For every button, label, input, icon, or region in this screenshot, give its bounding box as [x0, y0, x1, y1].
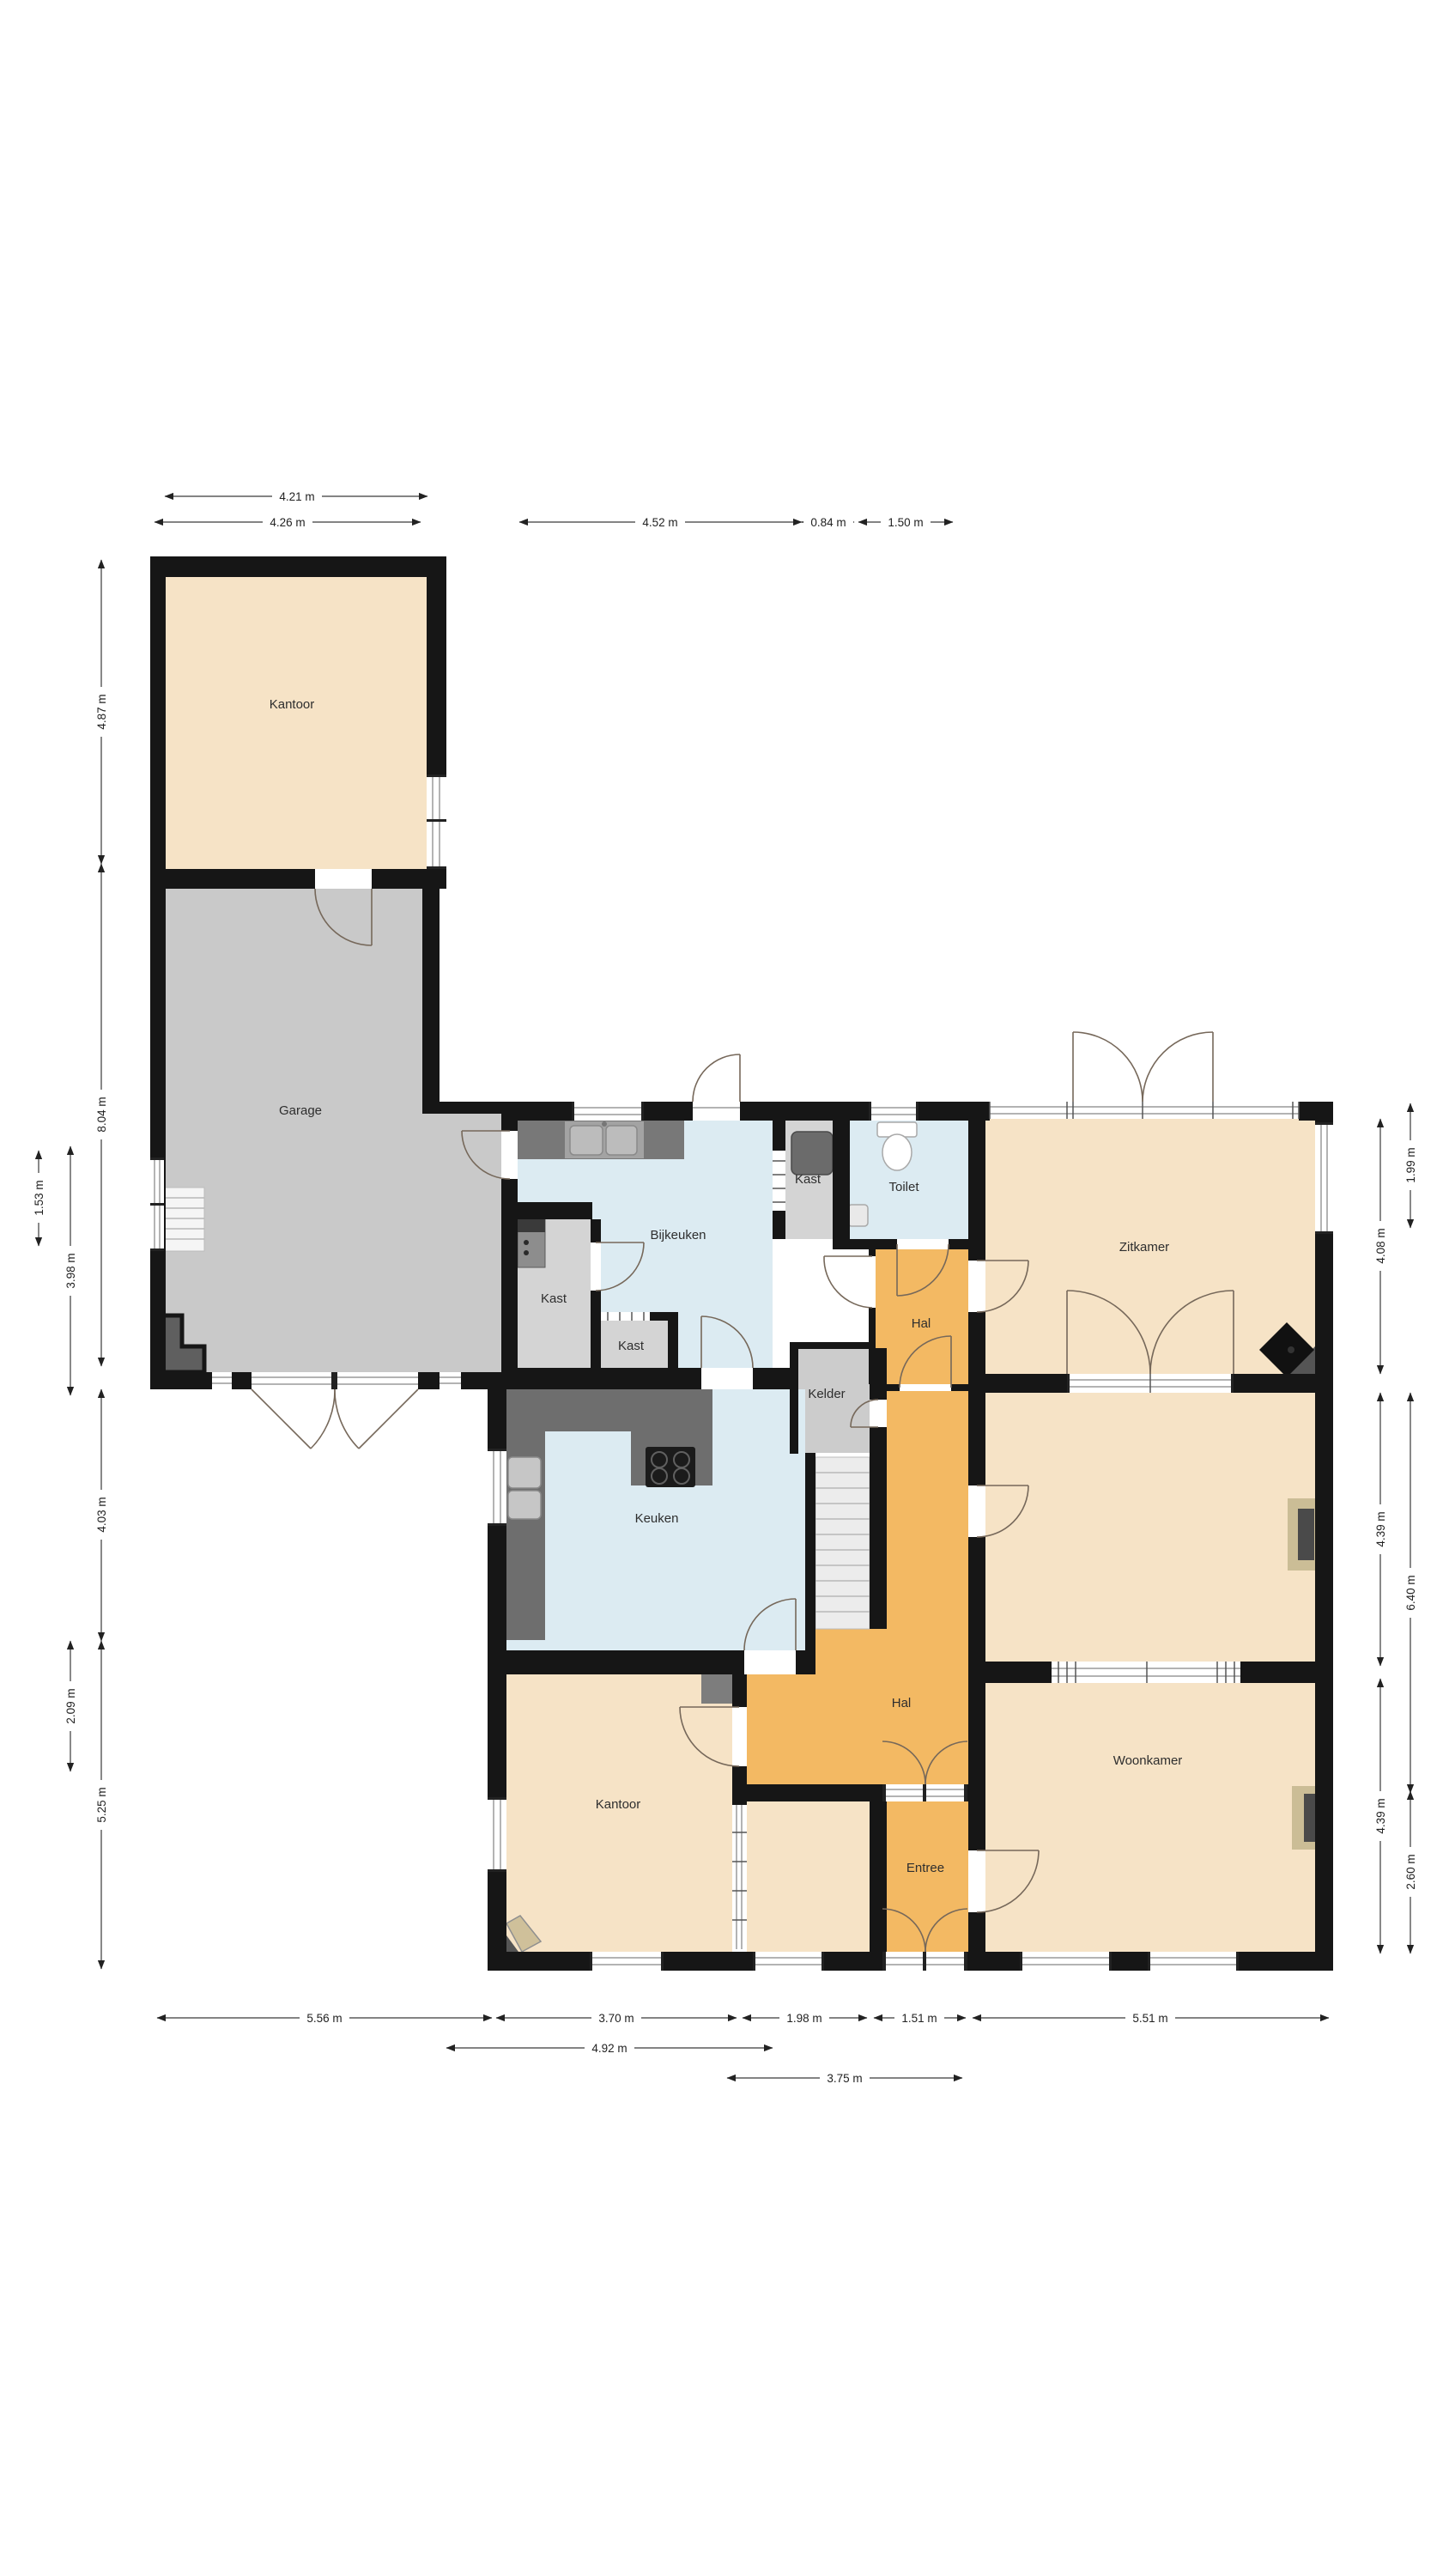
svg-text:6.40 m: 6.40 m	[1404, 1575, 1417, 1610]
dim-left-403: 4.03 m	[94, 1389, 109, 1641]
dim-bottom-556: 5.56 m	[157, 2010, 492, 2025]
label-hal-main: Hal	[892, 1696, 912, 1710]
label-kast-right: Kast	[795, 1172, 822, 1187]
opening-ensuite	[1052, 1662, 1240, 1683]
label-kantoor-top: Kantoor	[270, 697, 315, 712]
dim-top-084: 0.84 m	[802, 514, 854, 529]
room-hal-main-floor3	[744, 1674, 815, 1784]
svg-text:5.51 m: 5.51 m	[1132, 2012, 1167, 2025]
dim-bottom-551: 5.51 m	[973, 2010, 1329, 2025]
boiler-icon	[791, 1132, 833, 1175]
label-kantoor-bottom: Kantoor	[596, 1797, 641, 1812]
room-entree-floor	[887, 1801, 968, 1952]
dim-top-452: 4.52 m	[519, 514, 802, 529]
main-stairs-icon	[815, 1457, 870, 1629]
dim-left-209: 2.09 m	[64, 1641, 78, 1771]
svg-text:1.53 m: 1.53 m	[33, 1180, 45, 1215]
label-entree: Entree	[906, 1861, 944, 1875]
dim-bottom-492: 4.92 m	[446, 2040, 773, 2055]
dim-left-398: 3.98 m	[64, 1146, 78, 1395]
room-middle-room-floor	[985, 1393, 1315, 1662]
svg-text:3.75 m: 3.75 m	[827, 2072, 862, 2085]
label-kast-left: Kast	[541, 1291, 567, 1306]
bijkeuken-counter	[518, 1121, 684, 1159]
svg-text:1.51 m: 1.51 m	[901, 2012, 937, 2025]
dim-right-260: 2.60 m	[1404, 1791, 1418, 1953]
svg-text:4.39 m: 4.39 m	[1374, 1511, 1387, 1546]
room-kantoor-bottom-floor	[506, 1674, 732, 1952]
window-sideroom-bottom	[753, 1952, 824, 1971]
svg-text:3.98 m: 3.98 m	[64, 1253, 77, 1288]
svg-text:2.09 m: 2.09 m	[64, 1688, 77, 1723]
dim-right-640: 6.40 m	[1404, 1393, 1418, 1793]
svg-text:3.70 m: 3.70 m	[598, 2012, 634, 2025]
label-kast-bottom: Kast	[618, 1339, 645, 1353]
opening-kast-right	[773, 1151, 785, 1211]
svg-text:4.08 m: 4.08 m	[1374, 1228, 1387, 1263]
window-zitkamer-right	[1315, 1122, 1333, 1234]
label-kelder: Kelder	[808, 1387, 845, 1401]
svg-text:1.99 m: 1.99 m	[1404, 1147, 1417, 1182]
window-woonkamer-bottom-right	[1148, 1952, 1239, 1971]
dim-right-439b: 4.39 m	[1373, 1679, 1388, 1953]
door-bijkeuken-exterior	[693, 1054, 740, 1121]
kast-left-appliance-icon	[518, 1219, 545, 1267]
svg-text:0.84 m: 0.84 m	[810, 516, 846, 529]
room-side-room-floor	[747, 1801, 870, 1952]
dim-top-150: 1.50 m	[858, 514, 953, 529]
svg-text:5.56 m: 5.56 m	[306, 2012, 342, 2025]
dim-top-421: 4.21 m	[165, 489, 427, 503]
dim-top-426: 4.26 m	[155, 514, 421, 529]
dim-left-804: 8.04 m	[94, 864, 109, 1366]
window-bijkeuken-top	[572, 1102, 644, 1121]
dim-right-199: 1.99 m	[1404, 1103, 1418, 1228]
kitchen-sink-icon	[508, 1457, 541, 1488]
window-kantoor-bottom-left	[488, 1797, 506, 1872]
window-kantoor-bottom	[590, 1952, 664, 1971]
svg-text:4.03 m: 4.03 m	[95, 1497, 108, 1532]
door-bijkeuken-hal	[824, 1256, 876, 1308]
window-zitkamer-top-glazing	[990, 1102, 1299, 1119]
dim-bottom-375: 3.75 m	[727, 2070, 962, 2085]
radiator-icon	[1288, 1498, 1315, 1571]
window-keuken-left	[488, 1449, 506, 1526]
label-keuken: Keuken	[635, 1511, 679, 1526]
window-woonkamer-bottom-left	[1020, 1952, 1112, 1971]
room-kantoor-top-floor	[166, 575, 427, 869]
svg-text:8.04 m: 8.04 m	[95, 1097, 108, 1132]
dim-left-153: 1.53 m	[32, 1151, 46, 1246]
radiator2-icon	[1292, 1786, 1316, 1850]
svg-text:4.21 m: 4.21 m	[279, 490, 314, 503]
window-garage-bottom-left	[212, 1372, 232, 1389]
floor-plan: Kantoor Garage Bijkeuken Kast Kast Kast …	[0, 0, 1449, 2576]
svg-text:4.87 m: 4.87 m	[95, 694, 108, 729]
door-garage-double	[252, 1372, 418, 1449]
label-hal-upper: Hal	[912, 1316, 931, 1331]
glass-partition	[732, 1805, 747, 1949]
window-garage-bottom-right	[440, 1372, 461, 1389]
label-woonkamer: Woonkamer	[1113, 1753, 1183, 1768]
svg-text:1.98 m: 1.98 m	[786, 2012, 822, 2025]
svg-text:1.50 m: 1.50 m	[888, 516, 923, 529]
dim-bottom-151: 1.51 m	[874, 2010, 966, 2025]
room-hal-main-floor	[876, 1391, 968, 1784]
dim-bottom-370: 3.70 m	[496, 2010, 737, 2025]
svg-text:4.39 m: 4.39 m	[1374, 1798, 1387, 1833]
window-garage-left	[150, 1157, 164, 1251]
room-woonkamer-floor	[985, 1683, 1315, 1952]
label-toilet: Toilet	[888, 1180, 919, 1194]
opening-zitkamer-bottom	[1067, 1374, 1234, 1393]
window-kantoor-top-right	[427, 775, 446, 869]
svg-text:4.52 m: 4.52 m	[642, 516, 677, 529]
label-bijkeuken: Bijkeuken	[650, 1228, 706, 1242]
dim-left-525: 5.25 m	[94, 1641, 109, 1969]
svg-text:5.25 m: 5.25 m	[95, 1787, 108, 1822]
opening-kast-bottom	[601, 1312, 650, 1321]
label-zitkamer: Zitkamer	[1119, 1240, 1169, 1255]
dim-bottom-198: 1.98 m	[743, 2010, 867, 2025]
dim-left-487: 4.87 m	[94, 560, 109, 864]
dim-right-439a: 4.39 m	[1373, 1393, 1388, 1666]
dim-right-408: 4.08 m	[1373, 1119, 1388, 1374]
sink-icon	[848, 1205, 868, 1226]
svg-text:4.92 m: 4.92 m	[591, 2042, 627, 2055]
svg-text:2.60 m: 2.60 m	[1404, 1854, 1417, 1889]
label-garage: Garage	[279, 1103, 322, 1118]
room-hal-main-floor2	[815, 1629, 876, 1784]
room-garage-floor	[162, 889, 501, 1372]
svg-text:4.26 m: 4.26 m	[270, 516, 305, 529]
door-zitkamer-french	[1073, 1032, 1213, 1102]
window-toilet-top	[869, 1102, 919, 1121]
garage-stairs-icon	[163, 1188, 204, 1251]
